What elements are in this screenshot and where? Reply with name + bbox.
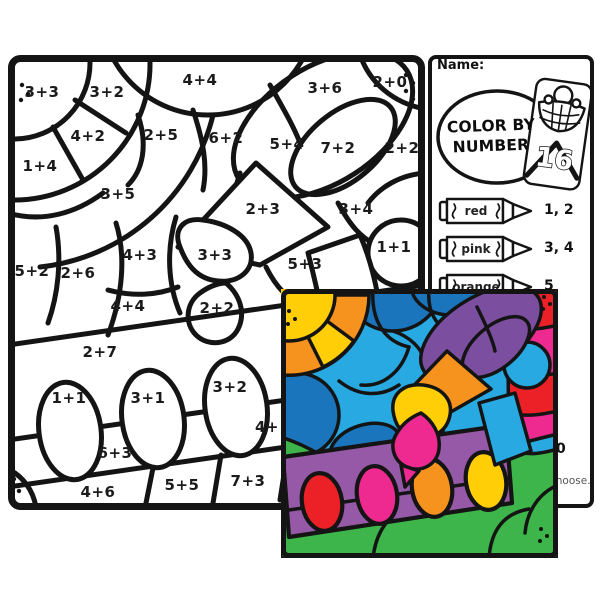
- math-problem: 5+5: [165, 476, 200, 494]
- math-problem: 3+1: [131, 389, 166, 407]
- svg-text:red: red: [465, 204, 488, 218]
- svg-text:pink: pink: [461, 242, 491, 256]
- crayon-icon: red: [438, 195, 538, 227]
- math-problem: 1+1: [377, 238, 412, 256]
- math-problem: 2+0: [373, 73, 408, 91]
- math-problem: 2+5: [144, 126, 179, 144]
- legend-row: pink 3, 4: [438, 233, 590, 267]
- math-problem: 5+3: [288, 255, 323, 273]
- math-problem: 2+2: [200, 299, 235, 317]
- math-problem: 4+4: [111, 297, 146, 315]
- math-problem: 3+6: [308, 79, 343, 97]
- worksheet-preview-collage: 3+33+24+43+62+04+22+56+25+47+22+21+43+52…: [0, 0, 600, 600]
- math-problem: 2+3: [246, 200, 281, 218]
- legend-row: red 1, 2: [438, 195, 590, 229]
- logo-text-line2: NUMBER: [436, 135, 547, 157]
- math-problem: 4+3: [123, 246, 158, 264]
- math-problem: 3+5: [101, 185, 136, 203]
- math-problem: 4+6: [81, 483, 116, 501]
- colored-answer-preview: [281, 289, 558, 558]
- math-problem: 4+: [255, 418, 279, 436]
- math-problem: 3+4: [339, 200, 374, 218]
- legend-numbers: 3, 4: [544, 240, 590, 256]
- math-problem: 6+3: [98, 444, 133, 462]
- math-problem: 6+2: [209, 129, 244, 147]
- math-problem: 3+3: [25, 83, 60, 101]
- math-problem: 5+4: [270, 135, 305, 153]
- colored-art: [281, 289, 558, 558]
- math-problem: 3+2: [213, 378, 248, 396]
- math-problem: 4+4: [183, 71, 218, 89]
- math-problem: 3+2: [90, 83, 125, 101]
- math-problem: 3+3: [198, 246, 233, 264]
- math-problem: 2+6: [61, 264, 96, 282]
- math-problem: 7+2: [321, 139, 356, 157]
- math-problem: 2+7: [83, 343, 118, 361]
- math-problem: 5+2: [15, 262, 50, 280]
- math-problem: 2+2: [385, 139, 420, 157]
- crayon-icon: pink: [438, 233, 538, 265]
- math-problem: 7+3: [231, 472, 266, 490]
- legend-numbers: 1, 2: [544, 202, 590, 218]
- math-problem: 1+4: [23, 157, 58, 175]
- logo-text-line1: COLOR BY: [436, 115, 547, 137]
- name-field-label: Name:: [437, 58, 484, 73]
- math-problem: 1+1: [52, 389, 87, 407]
- math-problem: 4+2: [71, 127, 106, 145]
